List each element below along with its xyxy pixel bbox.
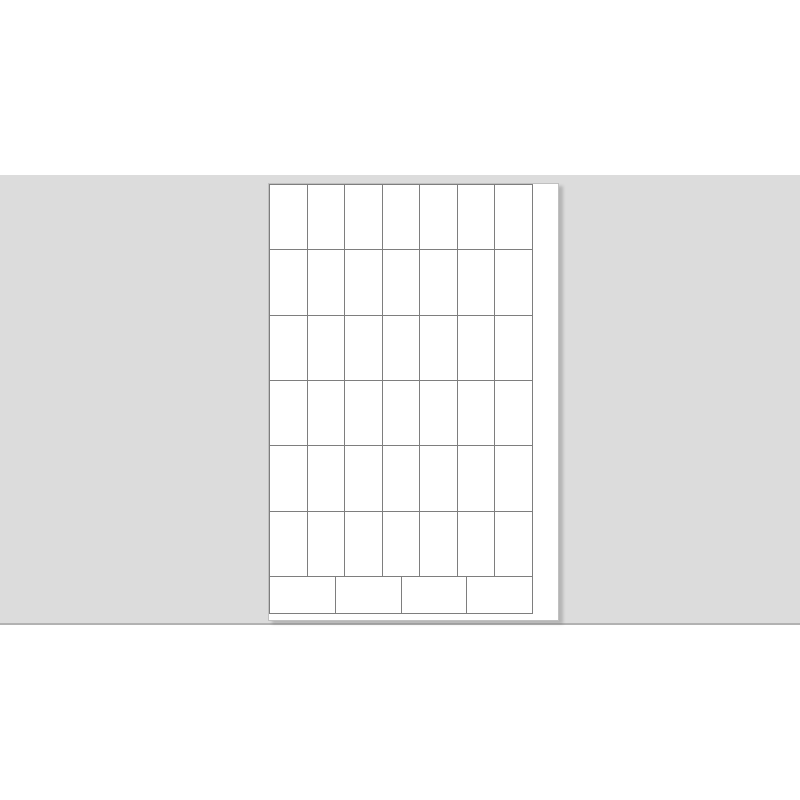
portrait-label-cell [308,250,345,314]
portrait-label-cell [345,185,382,249]
landscape-label-cell [402,577,467,613]
portrait-label-cell [270,381,307,445]
portrait-label-cell [383,446,420,510]
portrait-label-cell [495,446,532,510]
portrait-label-cell [420,381,457,445]
portrait-label-cell [270,185,307,249]
landscape-label-cell [467,577,532,613]
portrait-label-cell [345,250,382,314]
portrait-label-cell [383,185,420,249]
portrait-label-cell [345,512,382,576]
portrait-label-cell [458,316,495,380]
portrait-label-cell [420,316,457,380]
portrait-label-cell [383,250,420,314]
portrait-label-cell [458,512,495,576]
document-viewport [0,175,800,625]
portrait-label-cell [458,446,495,510]
portrait-label-cell [383,381,420,445]
portrait-label-cell [420,446,457,510]
portrait-label-cell [270,446,307,510]
portrait-label-cell [420,185,457,249]
portrait-label-cell [270,512,307,576]
portrait-label-cell [345,316,382,380]
portrait-label-cell [270,250,307,314]
portrait-label-cell [495,250,532,314]
portrait-label-cell [345,446,382,510]
portrait-label-cell [420,512,457,576]
label-sheet-page [268,183,559,621]
portrait-label-cell [458,250,495,314]
portrait-label-cell [495,185,532,249]
portrait-label-cell [458,381,495,445]
portrait-label-cell [495,381,532,445]
landscape-label-cell [270,577,335,613]
portrait-label-cell [308,185,345,249]
landscape-label-cell [336,577,401,613]
portrait-label-cell [345,381,382,445]
landscape-label-grid [269,576,533,614]
portrait-label-cell [308,316,345,380]
app-background [0,0,800,800]
portrait-label-cell [383,512,420,576]
portrait-label-cell [308,512,345,576]
portrait-label-cell [495,316,532,380]
portrait-label-cell [458,185,495,249]
portrait-label-cell [308,446,345,510]
portrait-label-cell [495,512,532,576]
portrait-label-cell [383,316,420,380]
portrait-label-cell [308,381,345,445]
portrait-label-grid [269,184,533,577]
portrait-label-cell [270,316,307,380]
portrait-label-cell [420,250,457,314]
